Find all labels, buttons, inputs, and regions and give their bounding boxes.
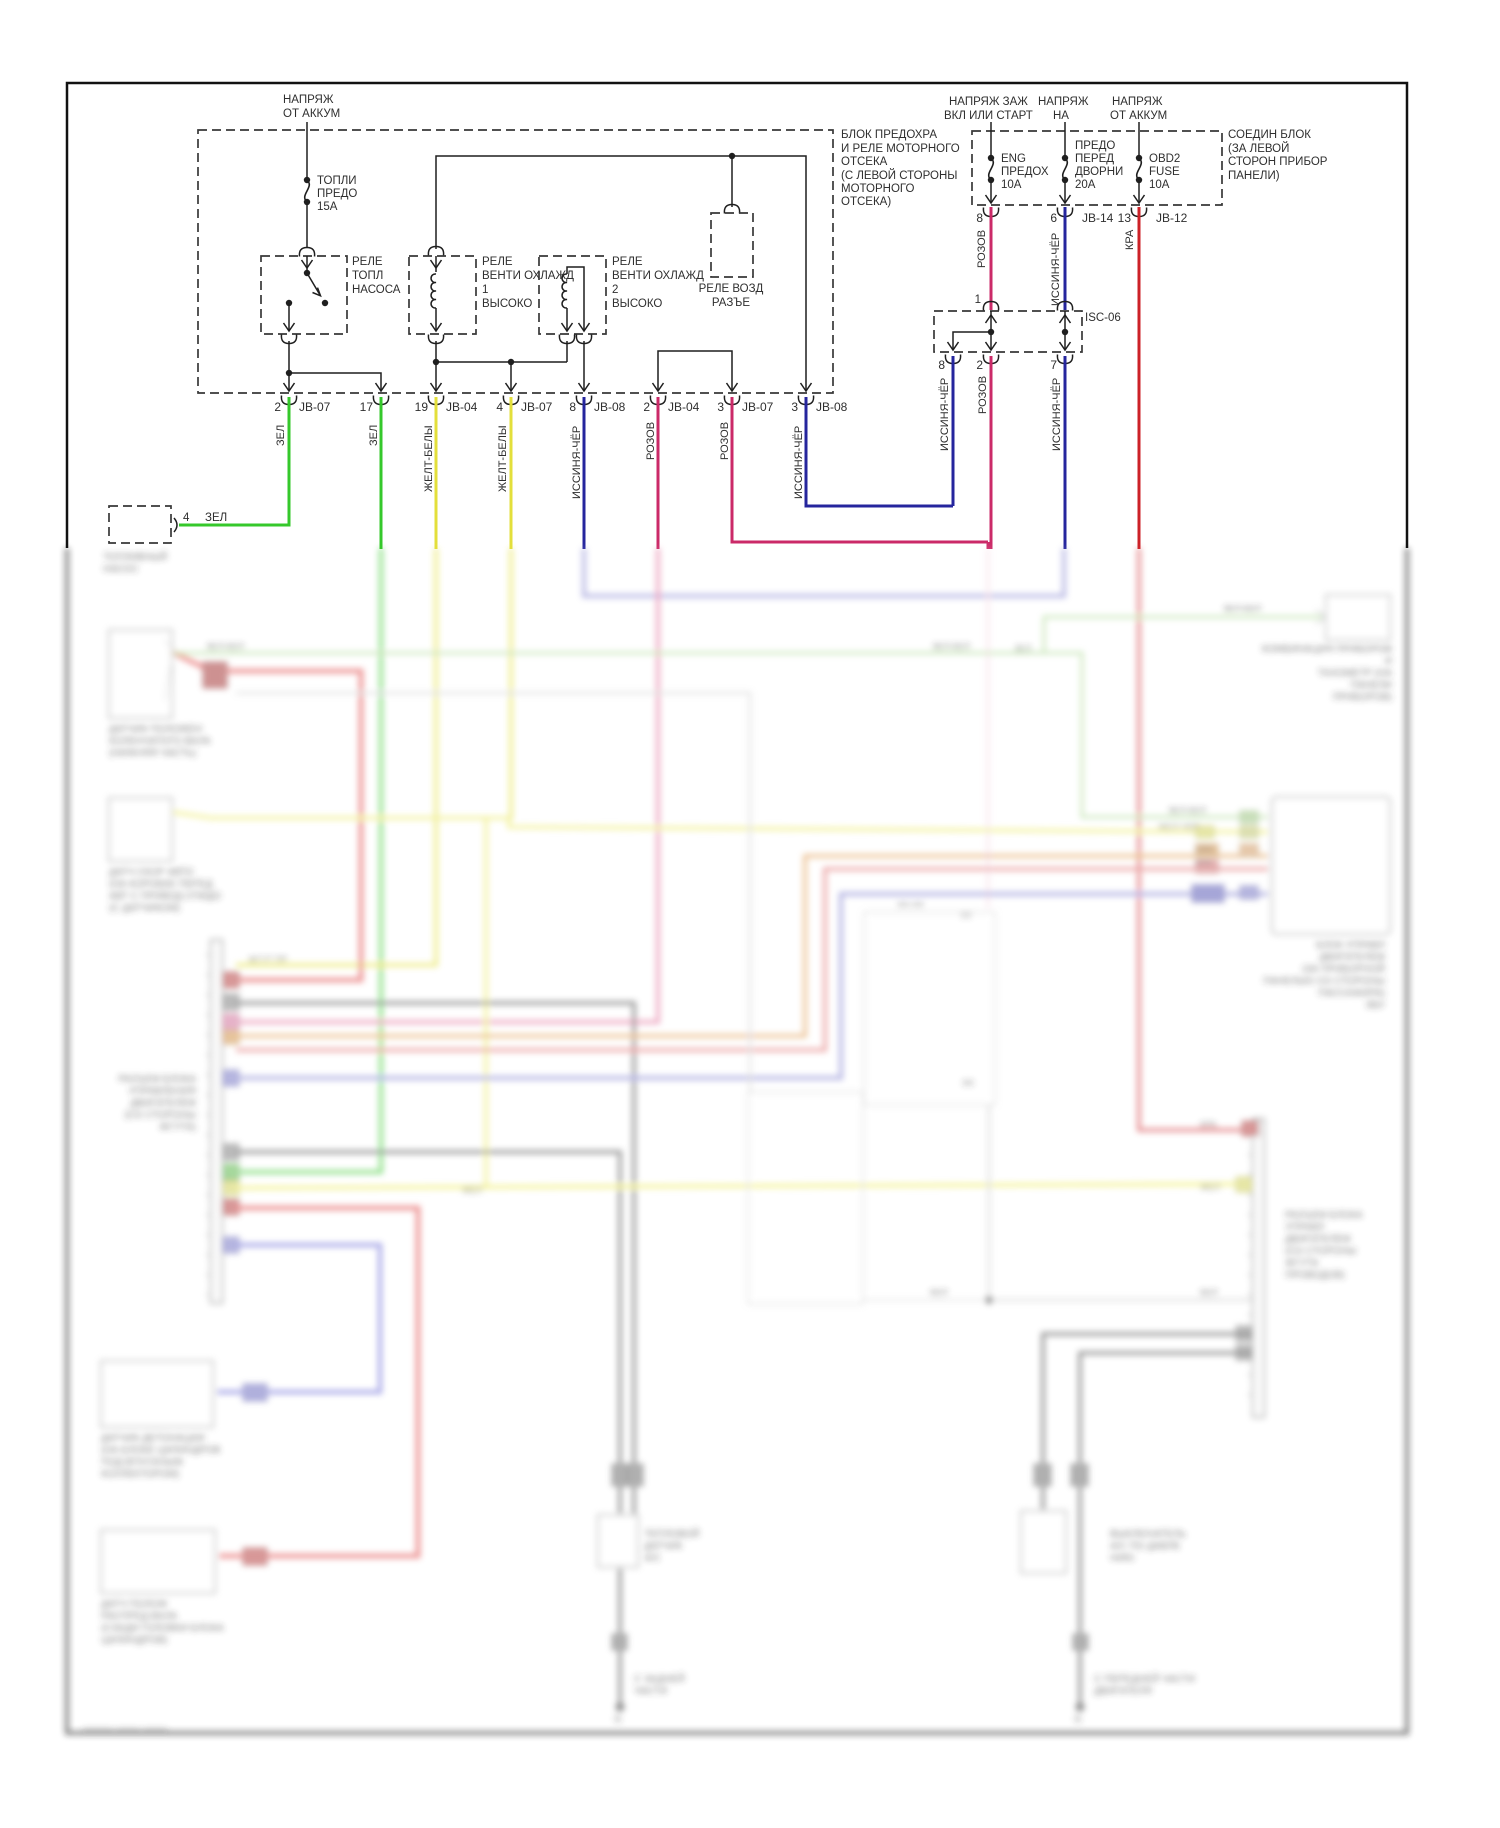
svg-text:БЛОК ПРЕДОХРА: БЛОК ПРЕДОХРА <box>841 129 937 141</box>
svg-text:1: 1 <box>975 294 981 306</box>
svg-text:ЗЕЛ: ЗЕЛ <box>368 425 380 446</box>
svg-text:ЗЕЛ-БЕЛ: ЗЕЛ-БЕЛ <box>206 642 244 652</box>
svg-text:КРА: КРА <box>1124 229 1136 250</box>
svg-text:ПОД ВПУСКНЫМ: ПОД ВПУСКНЫМ <box>101 1457 183 1468</box>
svg-text:ВЫСОКО: ВЫСОКО <box>612 298 662 310</box>
svg-text:(НА КОРОБКЕ ПЕРЕД: (НА КОРОБКЕ ПЕРЕД <box>109 879 213 890</box>
svg-text:И РЕЛЕ МОТОРНОГО: И РЕЛЕ МОТОРНОГО <box>841 143 960 155</box>
svg-text:НАПРЯЖ: НАПРЯЖ <box>1112 96 1163 108</box>
svg-text:2: 2 <box>612 284 618 296</box>
svg-text:ВЕНТИ ОХЛАЖД: ВЕНТИ ОХЛАЖД <box>612 270 704 282</box>
svg-text:НАПРЯЖ: НАПРЯЖ <box>283 94 334 106</box>
svg-text:(НА БЛОКЕ ЦИЛИНДРОВ: (НА БЛОКЕ ЦИЛИНДРОВ <box>101 1445 221 1456</box>
svg-text:КОМБИНАЦИЯ ПРИБОРОВ: КОМБИНАЦИЯ ПРИБОРОВ <box>1262 644 1393 655</box>
svg-text:13: 13 <box>1118 211 1132 225</box>
svg-text:ЖГУТ ПР: ЖГУТ ПР <box>248 955 287 965</box>
svg-text:JB-07: JB-07 <box>299 400 331 414</box>
svg-text:8: 8 <box>976 211 983 225</box>
svg-text:ВЫКЛЮЧАТЕЛЬ: ВЫКЛЮЧАТЕЛЬ <box>1110 1529 1187 1540</box>
svg-text:JB-08: JB-08 <box>816 400 848 414</box>
svg-text:КОЛЕНЧАТОГО ВАЛА: КОЛЕНЧАТОГО ВАЛА <box>109 736 211 747</box>
svg-text:2: 2 <box>274 400 281 414</box>
svg-text:FUSE: FUSE <box>1149 166 1180 178</box>
svg-text:ПРЕДО: ПРЕДО <box>317 188 357 200</box>
svg-text:КРА: КРА <box>1200 1120 1217 1130</box>
svg-text:И: И <box>1385 656 1392 667</box>
svg-text:XX-XX: XX-XX <box>897 900 924 910</box>
svg-text:ЧАСТИ: ЧАСТИ <box>634 1686 667 1697</box>
svg-text:ПРИБОРОВ): ПРИБОРОВ) <box>1332 692 1392 703</box>
svg-text:РАЗЪЕМ БЛОКА: РАЗЪЕМ БЛОКА <box>1285 1210 1363 1221</box>
svg-text:4: 4 <box>496 400 503 414</box>
svg-text:7: 7 <box>1050 358 1057 372</box>
svg-text:OBD2: OBD2 <box>1149 153 1180 165</box>
svg-text:ИССИНЯ-ЧЁР: ИССИНЯ-ЧЁР <box>571 426 583 499</box>
svg-text:JB-07: JB-07 <box>742 400 774 414</box>
svg-text:ДАТЧ СКОР АВТО: ДАТЧ СКОР АВТО <box>109 867 194 878</box>
svg-text:ЗЕЛ-БЕЛ: ЗЕЛ-БЕЛ <box>1168 806 1206 816</box>
svg-text:НАСОСА: НАСОСА <box>352 284 401 296</box>
svg-text:ПАНЕЛИ): ПАНЕЛИ) <box>1228 170 1280 182</box>
svg-text:НИЮ: НИЮ <box>1110 1553 1135 1564</box>
svg-text:4: 4 <box>183 512 190 524</box>
svg-text:3: 3 <box>717 400 724 414</box>
svg-text:JB-12: JB-12 <box>1156 211 1188 225</box>
svg-text:ПРЕДО: ПРЕДО <box>1075 140 1115 152</box>
svg-text:JB-07: JB-07 <box>521 400 553 414</box>
svg-text:ЗЕЛ-БЕЛ: ЗЕЛ-БЕЛ <box>932 642 970 652</box>
svg-text:НАСОС: НАСОС <box>103 564 139 575</box>
svg-text:УПРАВЛ: УПРАВЛ <box>1285 1222 1324 1233</box>
svg-text:ДВОРНИ: ДВОРНИ <box>1075 166 1123 178</box>
svg-text:ПАССАЖИРА): ПАССАЖИРА) <box>1318 988 1385 999</box>
svg-text:КОЛЛЕКТОРОМ): КОЛЛЕКТОРОМ) <box>101 1469 179 1480</box>
svg-text:РЕЛЕ: РЕЛЕ <box>352 256 383 268</box>
svg-text:ОТСЕКА: ОТСЕКА <box>841 156 888 168</box>
svg-text:(СЗАДИ ГОЛОВКИ БЛОКА: (СЗАДИ ГОЛОВКИ БЛОКА <box>101 1623 224 1634</box>
svg-text:ЖЕЛ: ЖЕЛ <box>1200 1182 1220 1192</box>
svg-text:ДВИГАТЕЛЯ: ДВИГАТЕЛЯ <box>1094 1686 1152 1697</box>
svg-text:БЕЛ: БЕЛ <box>930 1288 948 1298</box>
svg-text:ВЫСОКО: ВЫСОКО <box>482 298 532 310</box>
svg-text:ПРОВОДОВ): ПРОВОДОВ) <box>1285 1270 1345 1281</box>
svg-text:8: 8 <box>938 358 945 372</box>
svg-text:ТОПЛИ: ТОПЛИ <box>317 175 357 187</box>
svg-text:15А: 15А <box>317 201 338 213</box>
svg-text:ДАТЧИК ПОЛОЖЕН: ДАТЧИК ПОЛОЖЕН <box>109 724 202 735</box>
svg-text:А/С ПО ДАВЛЕ: А/С ПО ДАВЛЕ <box>1110 1541 1181 1552</box>
svg-text:ISC-06: ISC-06 <box>1085 312 1121 324</box>
svg-text:ЖЕЛТ-БЕЛЫ: ЖЕЛТ-БЕЛЫ <box>497 425 509 492</box>
svg-text:XXXXX-XXXX-XXXX: XXXXX-XXXX-XXXX <box>83 1726 167 1736</box>
svg-text:ЖГУТА: ЖГУТА <box>1285 1258 1319 1269</box>
svg-text:10А: 10А <box>1149 179 1170 191</box>
svg-text:НАПРЯЖ ЗАЖ: НАПРЯЖ ЗАЖ <box>949 96 1028 108</box>
svg-text:JB-14: JB-14 <box>1082 211 1114 225</box>
svg-text:(СО СТОРОНЫ: (СО СТОРОНЫ <box>124 1110 196 1121</box>
svg-text:2: 2 <box>643 400 650 414</box>
svg-text:6: 6 <box>1050 211 1057 225</box>
svg-text:(С ДАТЧИКОМ): (С ДАТЧИКОМ) <box>109 903 180 914</box>
svg-text:МОТОРНОГО: МОТОРНОГО <box>841 183 914 195</box>
svg-text:ОТ АККУМ: ОТ АККУМ <box>1110 110 1167 122</box>
svg-text:РЕЛЕ ВОЗД: РЕЛЕ ВОЗД <box>699 283 764 295</box>
svg-text:(НИЖНЯЯ ЧАСТЬ): (НИЖНЯЯ ЧАСТЬ) <box>109 748 196 759</box>
svg-text:1: 1 <box>482 284 488 296</box>
svg-text:ДВИГАТЕЛЕМ: ДВИГАТЕЛЕМ <box>130 1098 196 1109</box>
svg-text:ЖЕЛТ-БЕЛЫ: ЖЕЛТ-БЕЛЫ <box>423 425 435 492</box>
svg-text:ОТ АККУМ: ОТ АККУМ <box>283 108 340 120</box>
svg-text:РОЗОВ: РОЗОВ <box>976 230 988 268</box>
svg-text:JB-08: JB-08 <box>594 400 626 414</box>
svg-text:НА: НА <box>1053 110 1069 122</box>
svg-text:ЗЕЛ-БЕЛ: ЗЕЛ-БЕЛ <box>1223 604 1261 614</box>
svg-text:ВКЛ ИЛИ СТАРТ: ВКЛ ИЛИ СТАРТ <box>944 110 1033 122</box>
svg-text:(ЗА ПРИБОРНОЙ: (ЗА ПРИБОРНОЙ <box>1302 962 1385 975</box>
svg-text:(С ЛЕВОЙ СТОРОНЫ: (С ЛЕВОЙ СТОРОНЫ <box>841 169 957 182</box>
svg-text:СТОРОН ПРИБОР: СТОРОН ПРИБОР <box>1228 156 1328 168</box>
svg-text:РЕЛЕ: РЕЛЕ <box>612 256 643 268</box>
svg-text:ENG: ENG <box>1001 153 1026 165</box>
svg-text:РОЗОВ: РОЗОВ <box>645 422 657 460</box>
svg-text:ПАНЕЛИ: ПАНЕЛИ <box>1351 680 1393 691</box>
svg-text:РОЗОВ: РОЗОВ <box>719 422 731 460</box>
svg-text:ИССИНЯ-ЧЁР: ИССИНЯ-ЧЁР <box>1050 233 1062 306</box>
svg-text:ПАНЕЛЬЮ СО СТОРОНЫ: ПАНЕЛЬЮ СО СТОРОНЫ <box>1263 976 1385 987</box>
svg-text:JB-04: JB-04 <box>446 400 478 414</box>
svg-text:8: 8 <box>569 400 576 414</box>
svg-text:АВТ С ПРИВОД СПИДО: АВТ С ПРИВОД СПИДО <box>109 891 221 902</box>
svg-text:НАПРЯЖ: НАПРЯЖ <box>1038 96 1089 108</box>
svg-text:ТАХОМЕТР (НА: ТАХОМЕТР (НА <box>1318 668 1393 679</box>
svg-text:КРА: КРА <box>1195 858 1212 868</box>
svg-text:ДВИГАТЕЛЕМ: ДВИГАТЕЛЕМ <box>1319 952 1385 963</box>
svg-text:ПЕРЕД: ПЕРЕД <box>1075 153 1114 165</box>
svg-text:ДАТЧИК: ДАТЧИК <box>644 1541 683 1552</box>
svg-text:20А: 20А <box>1075 179 1096 191</box>
svg-text:ЗЕЛ: ЗЕЛ <box>1014 644 1031 654</box>
svg-text:ТОПЛИВНЫЙ: ТОПЛИВНЫЙ <box>103 550 167 563</box>
svg-text:РОЗОВ: РОЗОВ <box>977 376 989 414</box>
svg-text:РАЗЪЕМ БЛОКА: РАЗЪЕМ БЛОКА <box>118 1074 196 1085</box>
svg-text:А/С: А/С <box>644 1553 661 1564</box>
svg-text:(СО СТОРОНЫ: (СО СТОРОНЫ <box>1285 1246 1357 1257</box>
svg-text:ЗЕЛ: ЗЕЛ <box>205 512 227 524</box>
svg-text:19: 19 <box>415 400 429 414</box>
svg-text:(ЗА ЛЕВОЙ: (ЗА ЛЕВОЙ <box>1228 142 1289 155</box>
svg-text:ОТСЕКА): ОТСЕКА) <box>841 196 891 208</box>
svg-text:С ЗАДНЕЙ: С ЗАДНЕЙ <box>634 1672 685 1685</box>
svg-text:ЭБУ: ЭБУ <box>1365 1000 1386 1011</box>
svg-text:XX: XX <box>960 910 972 920</box>
svg-text:JB-04: JB-04 <box>668 400 700 414</box>
svg-text:РЕЛЕ: РЕЛЕ <box>482 256 513 268</box>
svg-text:С ПЕРЕДНЕЙ ЧАСТИ: С ПЕРЕДНЕЙ ЧАСТИ <box>1094 1672 1195 1685</box>
svg-text:ДАТЧ ПОЛОЖ: ДАТЧ ПОЛОЖ <box>101 1599 168 1610</box>
svg-text:ОРА: ОРА <box>1195 845 1213 855</box>
svg-text:G: G <box>1074 1714 1082 1725</box>
svg-text:3: 3 <box>791 400 798 414</box>
svg-text:ДВИГАТЕЛЕМ: ДВИГАТЕЛЕМ <box>1285 1234 1351 1245</box>
svg-text:УПРАВЛЕНИЯ: УПРАВЛЕНИЯ <box>128 1086 196 1097</box>
svg-text:ВЕНТИ ОХЛАЖД: ВЕНТИ ОХЛАЖД <box>482 270 574 282</box>
svg-text:ТОПЛ: ТОПЛ <box>352 270 383 282</box>
svg-text:2: 2 <box>976 358 983 372</box>
svg-text:ТЕПЛОВОЙ: ТЕПЛОВОЙ <box>644 1527 700 1540</box>
svg-text:XX: XX <box>962 1078 974 1088</box>
svg-text:G: G <box>614 1714 622 1725</box>
svg-text:ЖЕЛ: ЖЕЛ <box>462 1185 482 1195</box>
svg-text:РАЗЪЕ: РАЗЪЕ <box>712 297 750 309</box>
svg-text:БЕЛ: БЕЛ <box>1200 1288 1218 1298</box>
svg-text:ЗЕЛ: ЗЕЛ <box>275 425 287 446</box>
svg-text:ЦИЛИНДРОВ): ЦИЛИНДРОВ) <box>101 1635 168 1646</box>
svg-text:РАСПРЕД ВАЛА: РАСПРЕД ВАЛА <box>101 1611 178 1622</box>
svg-text:ДАТЧИК ДЕТОНАЦИИ: ДАТЧИК ДЕТОНАЦИИ <box>101 1433 205 1444</box>
svg-text:ИССИНЯ-ЧЁР: ИССИНЯ-ЧЁР <box>939 378 951 451</box>
svg-text:БЛОК УПРАВЛ: БЛОК УПРАВЛ <box>1316 940 1385 951</box>
svg-text:ЖГУТА): ЖГУТА) <box>159 1122 196 1133</box>
svg-text:СОЕДИН БЛОК: СОЕДИН БЛОК <box>1228 129 1311 141</box>
svg-text:ИССИНЯ-ЧЁР: ИССИНЯ-ЧЁР <box>793 426 805 499</box>
svg-text:ПРЕДОХ: ПРЕДОХ <box>1001 166 1049 178</box>
svg-text:ЖЕЛ-ЧЕР: ЖЕЛ-ЧЕР <box>1158 822 1199 832</box>
svg-text:ИССИНЯ-ЧЁР: ИССИНЯ-ЧЁР <box>1051 378 1063 451</box>
svg-text:10А: 10А <box>1001 179 1022 191</box>
svg-text:17: 17 <box>360 400 374 414</box>
